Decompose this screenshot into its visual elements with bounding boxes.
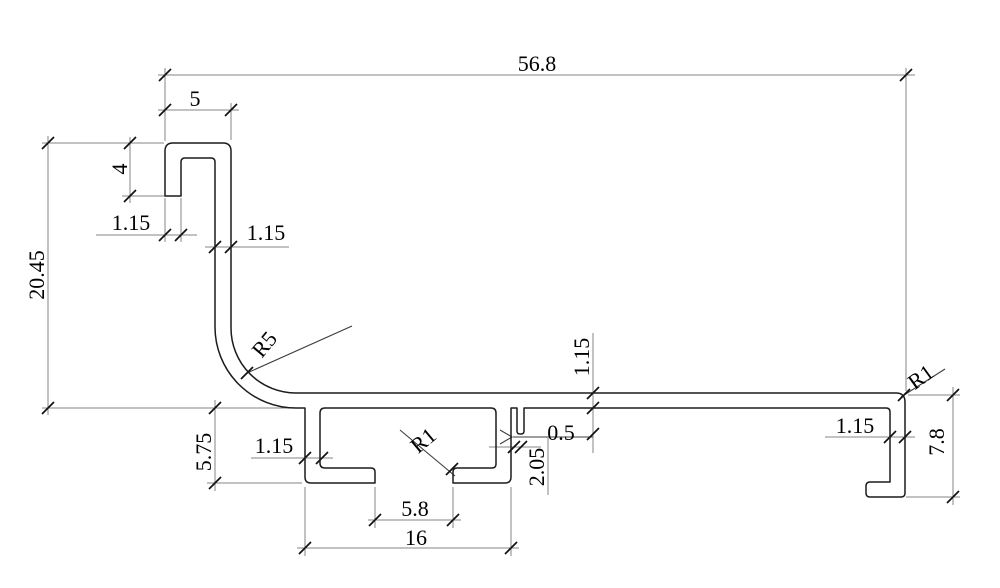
dim-right-wall-thickness-label: 1.15 — [836, 413, 875, 438]
dim-channel-outer-width-label: 16 — [405, 525, 427, 550]
drawing-canvas: 56.8 5 4 1.15 1.15 20.45 R5 5.75 1.15 R1… — [0, 0, 1000, 588]
dim-channel-wall-thickness-label: 1.15 — [255, 433, 294, 458]
dim-hook-leg-length-label: 4 — [107, 164, 132, 175]
dim-right-end-height-label: 7.8 — [924, 428, 949, 456]
dim-overall-width-label: 56.8 — [518, 51, 557, 76]
dim-slot-width-label: 5.8 — [401, 496, 429, 521]
dim-left-wall-thickness-label: 1.15 — [247, 220, 286, 245]
profile-drawing: 56.8 5 4 1.15 1.15 20.45 R5 5.75 1.15 R1… — [0, 0, 1000, 588]
dim-overall-height-label: 20.45 — [24, 250, 49, 300]
dim-hook-width-label: 5 — [190, 86, 201, 111]
dim-lip-depth-label: 2.05 — [524, 448, 549, 487]
drawing-background — [0, 0, 1000, 588]
dim-lip-thickness-label: 0.5 — [547, 420, 575, 445]
dim-web-thickness-label: 1.15 — [569, 338, 594, 377]
dim-hook-leg-thickness-label: 1.15 — [112, 210, 151, 235]
dim-channel-depth-label: 5.75 — [191, 433, 216, 472]
